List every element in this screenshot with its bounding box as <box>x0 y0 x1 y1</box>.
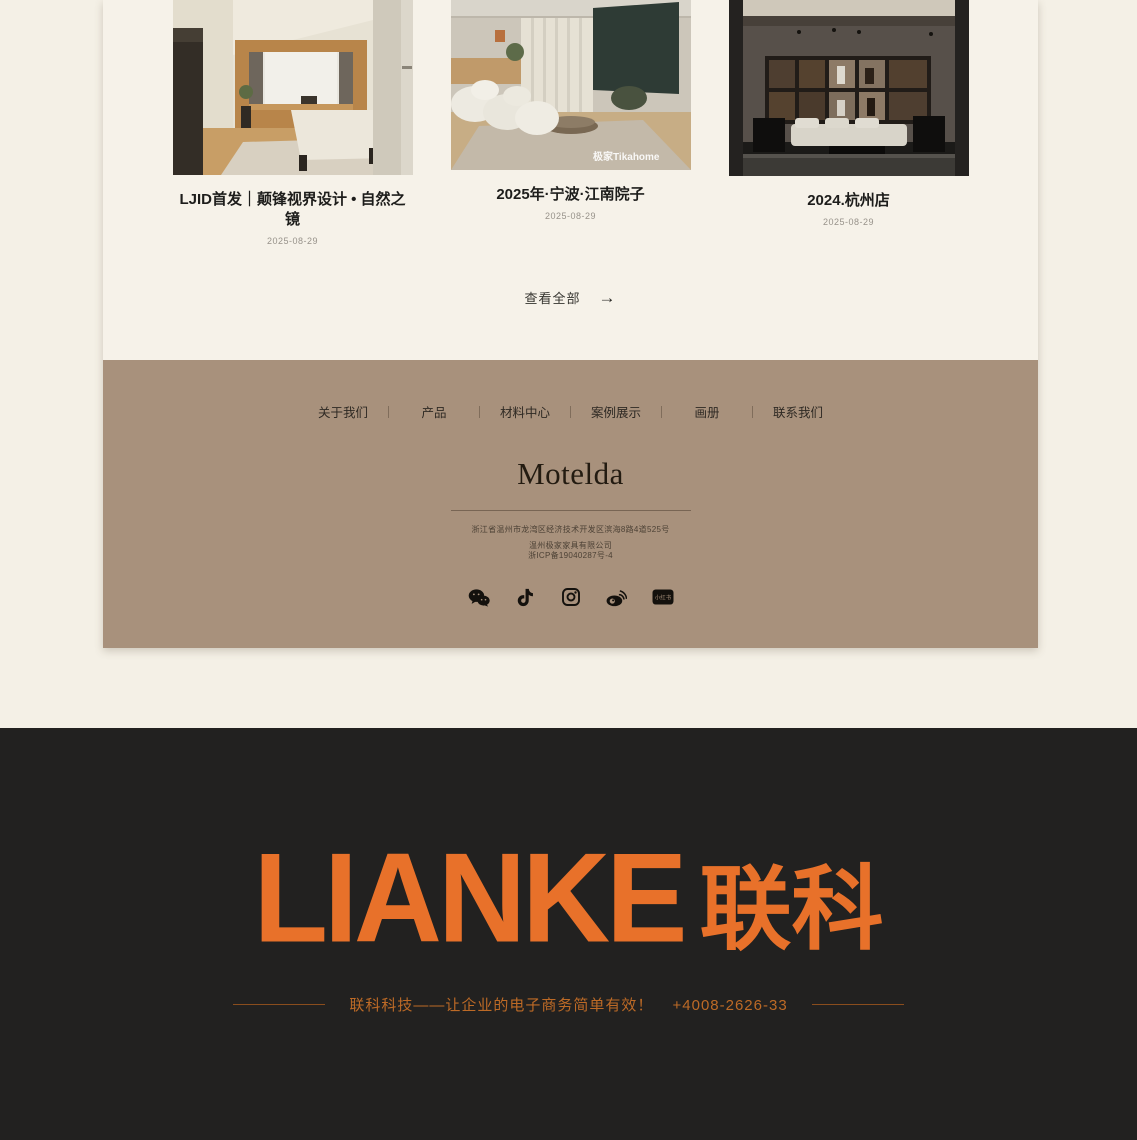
showroom-photo-illustration <box>729 0 969 176</box>
footer-nav-cases[interactable]: 案例展示 <box>571 402 661 421</box>
bedroom-photo-illustration <box>173 0 413 175</box>
weibo-icon[interactable] <box>606 586 628 608</box>
promo-tagline-row: 联科科技——让企业的电子商务简单有效！ +4008-2626-33 <box>0 994 1137 1015</box>
tagline-text: 联科科技——让企业的电子商务简单有效！ +4008-2626-33 <box>349 994 787 1015</box>
case-date: 2025-08-29 <box>451 211 691 221</box>
case-title: 2024.杭州店 <box>729 191 969 211</box>
case-image-showroom[interactable] <box>729 0 969 176</box>
case-card-2[interactable]: 极家Tikahome 2025年·宁波·江南院子 2025-08-29 <box>451 0 691 246</box>
footer-nav-materials[interactable]: 材料中心 <box>480 402 570 421</box>
promo-band: LIANKE 联科 联科科技——让企业的电子商务简单有效！ +4008-2626… <box>0 728 1137 1140</box>
case-title: LJID首发｜颠锋视界设计 • 自然之镜 <box>173 190 413 230</box>
social-icons-row: 小红书 <box>103 586 1038 608</box>
case-date: 2025-08-29 <box>729 217 969 227</box>
case-card-1[interactable]: LJID首发｜颠锋视界设计 • 自然之镜 2025-08-29 <box>173 0 413 246</box>
motelda-logo: Motelda <box>103 456 1038 492</box>
xiaohongshu-icon[interactable]: 小红书 <box>652 586 674 608</box>
lianke-logo-latin: LIANKE <box>253 848 683 949</box>
footer-nav-about[interactable]: 关于我们 <box>298 402 388 421</box>
footer-nav-catalog[interactable]: 画册 <box>662 402 752 421</box>
wechat-icon[interactable] <box>468 586 490 608</box>
case-card-3[interactable]: 2024.杭州店 2025-08-29 <box>729 0 969 246</box>
xiaohongshu-logo-text: 小红书 <box>654 594 671 602</box>
footer-nav-products[interactable]: 产品 <box>389 402 479 421</box>
case-date: 2025-08-29 <box>173 236 413 246</box>
content-panel: LJID首发｜颠锋视界设计 • 自然之镜 2025-08-29 <box>103 0 1038 648</box>
cases-section: LJID首发｜颠锋视界设计 • 自然之镜 2025-08-29 <box>103 0 1038 360</box>
view-all-label: 查看全部 <box>524 288 580 307</box>
case-title: 2025年·宁波·江南院子 <box>451 185 691 205</box>
tagline-rule-left <box>233 1004 325 1005</box>
footer-divider-line <box>451 510 691 511</box>
footer-icp-number: 浙ICP备19040287号-4 <box>103 550 1038 561</box>
living-room-photo-illustration: 极家Tikahome <box>451 0 691 170</box>
tagline-rule-right <box>812 1004 904 1005</box>
footer-nav: 关于我们 产品 材料中心 案例展示 画册 联系我们 <box>103 402 1038 421</box>
instagram-icon[interactable] <box>560 586 582 608</box>
case-image-living-room[interactable]: 极家Tikahome <box>451 0 691 170</box>
footer-address: 浙江省温州市龙湾区经济技术开发区滨海8路4道525号 <box>103 524 1038 535</box>
arrow-right-icon: → <box>599 291 617 304</box>
view-all-link[interactable]: 查看全部 → <box>103 288 1038 307</box>
footer-nav-contact[interactable]: 联系我们 <box>753 402 843 421</box>
lianke-logo: LIANKE 联科 <box>0 850 1137 948</box>
site-footer: 关于我们 产品 材料中心 案例展示 画册 联系我们 Motelda 浙江省温州市… <box>103 360 1038 648</box>
case-image-bedroom[interactable] <box>173 0 413 175</box>
tagline-phone[interactable]: +4008-2626-33 <box>673 997 788 1014</box>
tiktok-icon[interactable] <box>514 586 536 608</box>
case-cards-row: LJID首发｜颠锋视界设计 • 自然之镜 2025-08-29 <box>103 0 1038 246</box>
photo-watermark: 极家Tikahome <box>593 150 660 163</box>
lianke-logo-chinese: 联科 <box>700 874 884 948</box>
tagline-slogan: 联科科技——让企业的电子商务简单有效！ <box>349 997 653 1014</box>
